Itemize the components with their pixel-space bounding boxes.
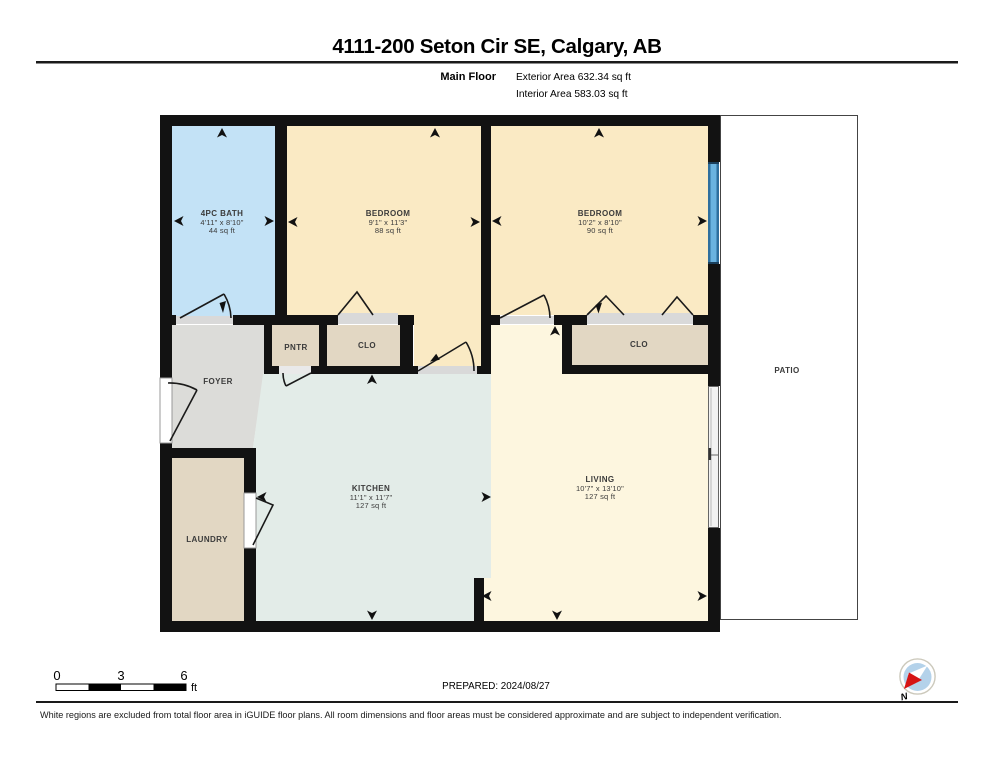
svg-text:127 sq ft: 127 sq ft [356,501,387,510]
svg-text:127 sq ft: 127 sq ft [585,492,616,501]
svg-text:6: 6 [180,668,187,683]
svg-text:LIVING: LIVING [585,475,614,484]
svg-text:BEDROOM: BEDROOM [578,209,623,218]
svg-text:FOYER: FOYER [203,377,233,386]
svg-text:0: 0 [53,668,60,683]
svg-text:4111-200 Seton Cir SE, Calgary: 4111-200 Seton Cir SE, Calgary, AB [332,35,661,58]
svg-text:LAUNDRY: LAUNDRY [186,535,228,544]
svg-text:PNTR: PNTR [284,343,307,352]
svg-text:88 sq ft: 88 sq ft [375,226,402,235]
svg-text:Exterior Area 632.34 sq ft: Exterior Area 632.34 sq ft [516,72,631,83]
svg-text:4PC BATH: 4PC BATH [201,209,244,218]
svg-text:PATIO: PATIO [774,366,799,375]
svg-text:Main Floor: Main Floor [440,71,496,83]
svg-text:White regions are excluded fro: White regions are excluded from total fl… [40,710,782,720]
svg-text:Interior Area 583.03 sq ft: Interior Area 583.03 sq ft [516,89,628,100]
svg-text:KITCHEN: KITCHEN [352,484,390,493]
svg-text:PREPARED: 2024/08/27: PREPARED: 2024/08/27 [442,681,550,692]
svg-text:90 sq ft: 90 sq ft [587,226,614,235]
svg-text:CLO: CLO [630,340,648,349]
svg-text:BEDROOM: BEDROOM [366,209,411,218]
svg-text:ft: ft [191,682,197,694]
svg-text:CLO: CLO [358,341,376,350]
svg-text:44 sq ft: 44 sq ft [209,226,236,235]
svg-text:3: 3 [117,668,124,683]
